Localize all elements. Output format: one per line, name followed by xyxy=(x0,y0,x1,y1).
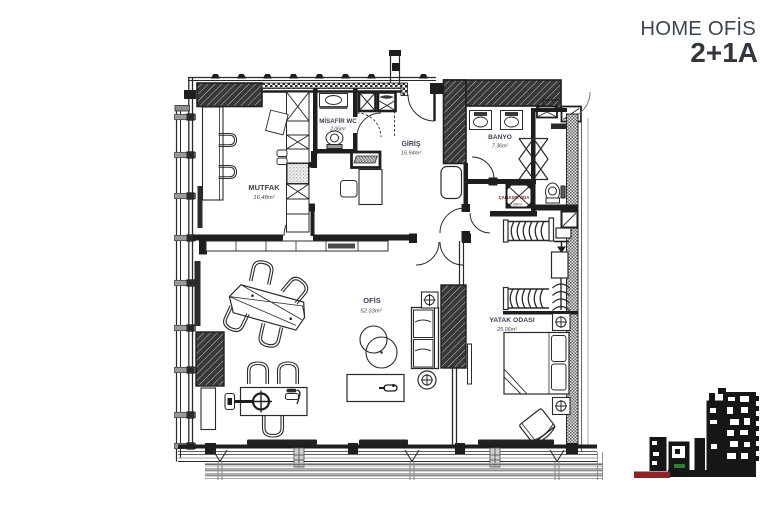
svg-text:MUTFAK: MUTFAK xyxy=(248,183,280,192)
svg-text:ÇAMAŞIR ODA: ÇAMAŞIR ODA xyxy=(499,195,530,200)
svg-text:MİSAFİR WC: MİSAFİR WC xyxy=(319,118,357,125)
svg-text:16.48m²: 16.48m² xyxy=(253,195,275,201)
svg-text:2+1A: 2+1A xyxy=(690,37,758,68)
svg-text:52.33m²: 52.33m² xyxy=(360,309,382,315)
svg-text:16.94m²: 16.94m² xyxy=(401,151,421,157)
svg-text:GİRİŞ: GİRİŞ xyxy=(401,140,420,148)
svg-text:7.36m²: 7.36m² xyxy=(492,144,508,150)
svg-text:0.98m²: 0.98m² xyxy=(510,202,523,207)
svg-text:BANYO: BANYO xyxy=(488,134,512,141)
svg-text:OFİS: OFİS xyxy=(363,296,381,305)
svg-text:YATAK ODASI: YATAK ODASI xyxy=(489,317,534,324)
